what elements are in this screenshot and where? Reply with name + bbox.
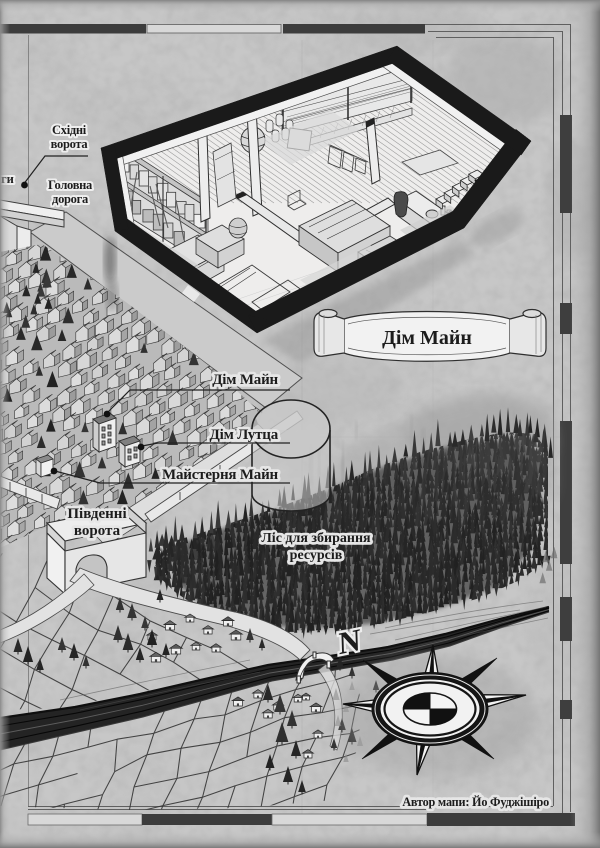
svg-text:N: N xyxy=(338,621,362,661)
svg-text:Майстерня Майн: Майстерня Майн xyxy=(162,467,279,483)
svg-text:Південні: Південні xyxy=(67,506,126,522)
svg-text:Дім Майн: Дім Майн xyxy=(382,327,472,349)
svg-text:Дім Лутца: Дім Лутца xyxy=(210,427,279,443)
svg-text:дорога: дорога xyxy=(52,192,89,206)
svg-text:ворота: ворота xyxy=(51,137,89,151)
svg-text:Головна: Головна xyxy=(48,178,93,192)
svg-text:Дім Майн: Дім Майн xyxy=(212,372,278,388)
svg-text:ресурсів: ресурсів xyxy=(290,548,343,563)
svg-text:Автор мапи: Йо Фуджішіро: Автор мапи: Йо Фуджішіро xyxy=(402,795,549,809)
svg-text:Східні: Східні xyxy=(52,123,87,137)
svg-text:Ліс для збирання: Ліс для збирання xyxy=(261,531,371,546)
svg-text:ворота: ворота xyxy=(74,523,121,539)
